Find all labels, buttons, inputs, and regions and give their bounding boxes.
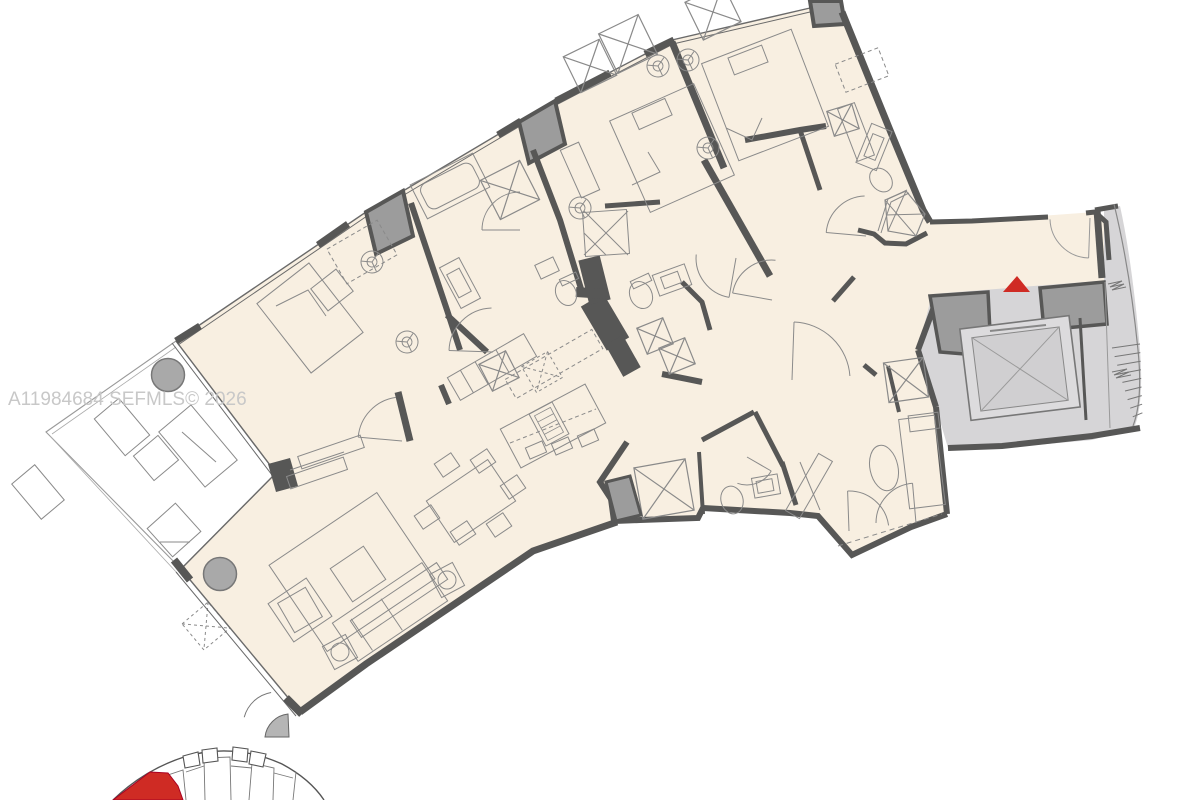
svg-text:A11984684 SEFMLS© 2026: A11984684 SEFMLS© 2026: [8, 389, 247, 410]
